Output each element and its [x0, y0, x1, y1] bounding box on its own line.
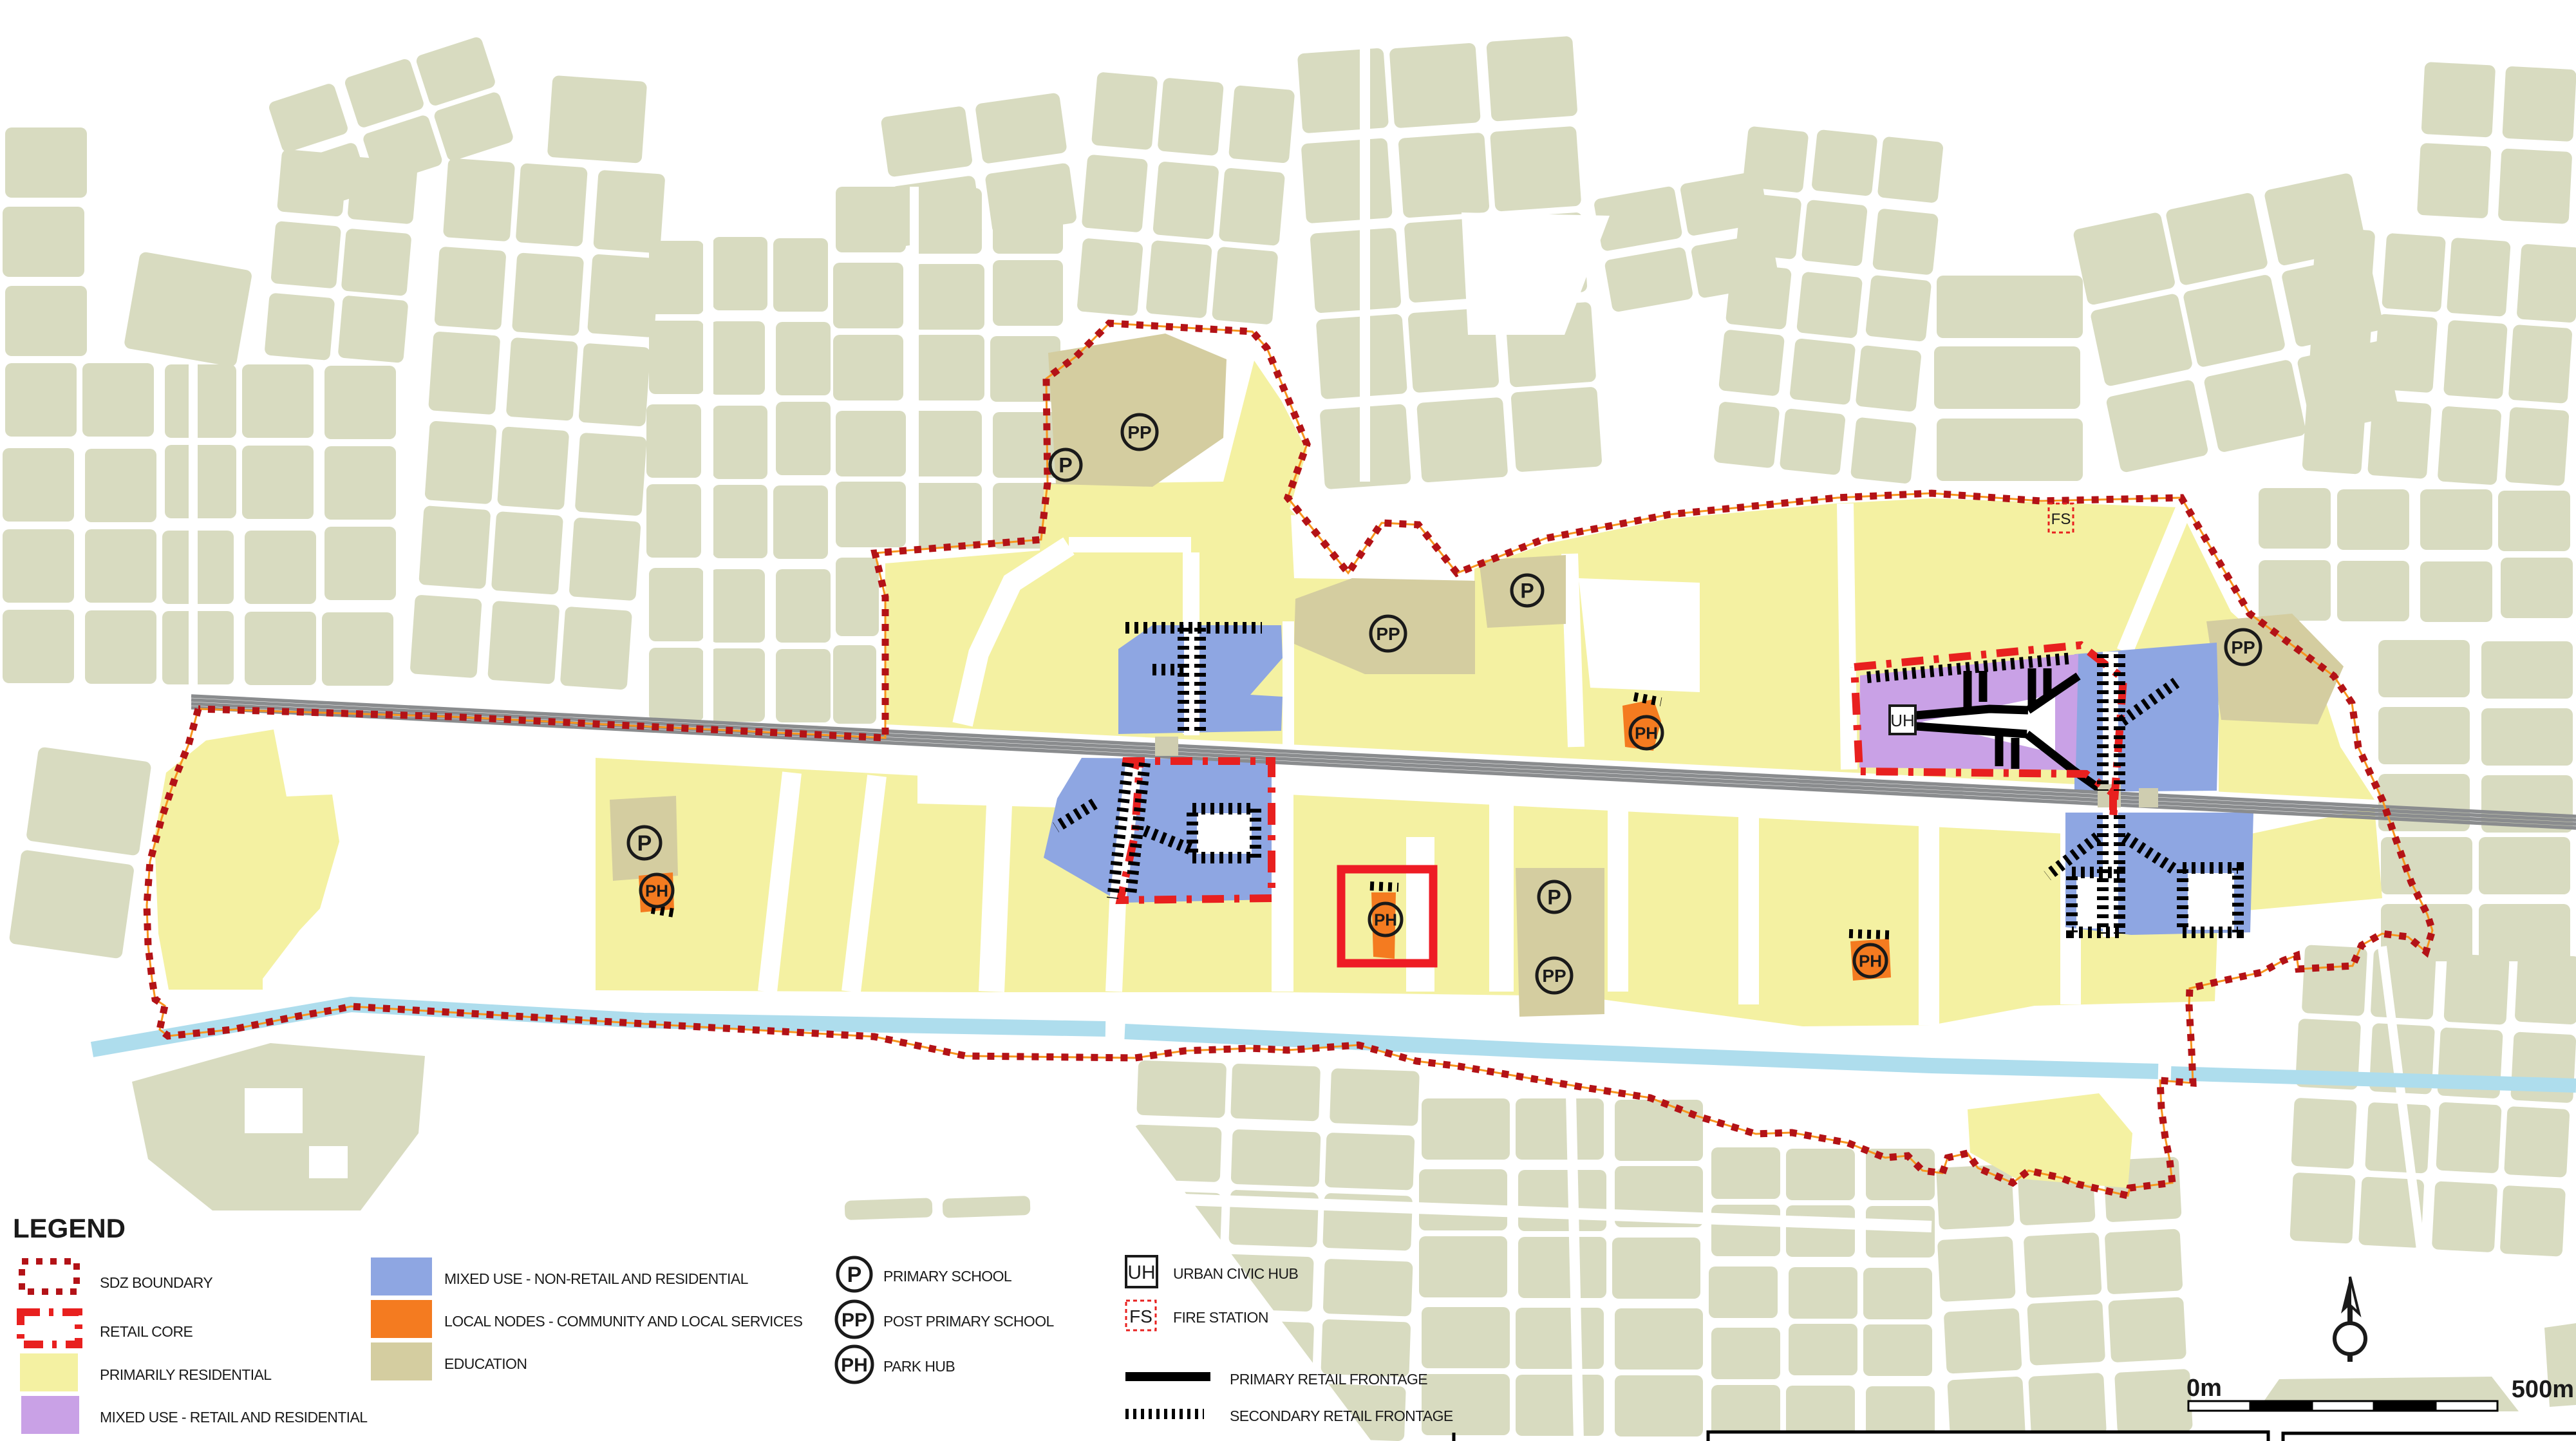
svg-text:P: P — [637, 831, 652, 856]
svg-text:0m: 0m — [2186, 1375, 2222, 1402]
svg-text:FS: FS — [1129, 1306, 1152, 1326]
svg-text:SDZ BOUNDARY: SDZ BOUNDARY — [100, 1274, 212, 1291]
svg-text:LOCAL NODES - COMMUNITY AND LO: LOCAL NODES - COMMUNITY AND LOCAL SERVIC… — [444, 1313, 803, 1330]
svg-text:EDUCATION: EDUCATION — [444, 1355, 527, 1372]
svg-text:RETAIL CORE: RETAIL CORE — [100, 1323, 193, 1340]
svg-text:500m: 500m — [2512, 1376, 2574, 1403]
svg-text:PARK HUB: PARK HUB — [883, 1358, 955, 1375]
svg-text:PH: PH — [1859, 951, 1882, 970]
svg-text:PP: PP — [841, 1310, 867, 1331]
svg-text:LEGEND: LEGEND — [13, 1213, 126, 1243]
svg-text:PRIMARY RETAIL FRONTAGE: PRIMARY RETAIL FRONTAGE — [1230, 1371, 1427, 1388]
svg-text:P: P — [847, 1263, 862, 1287]
svg-text:POST PRIMARY SCHOOL: POST PRIMARY SCHOOL — [883, 1313, 1054, 1330]
svg-text:PH: PH — [1635, 723, 1658, 742]
svg-text:PP: PP — [1542, 966, 1566, 986]
svg-text:P: P — [1058, 454, 1072, 477]
svg-text:SECONDARY RETAIL FRONTAGE: SECONDARY RETAIL FRONTAGE — [1230, 1408, 1453, 1424]
svg-text:FS: FS — [2051, 511, 2071, 528]
svg-text:PRIMARILY RESIDENTIAL: PRIMARILY RESIDENTIAL — [100, 1366, 272, 1383]
svg-text:PH: PH — [841, 1355, 868, 1376]
svg-text:P: P — [1520, 579, 1534, 603]
svg-text:PRIMARY SCHOOL: PRIMARY SCHOOL — [883, 1268, 1012, 1285]
svg-text:MIXED USE - NON-RETAIL AND RES: MIXED USE - NON-RETAIL AND RESIDENTIAL — [444, 1270, 749, 1287]
svg-text:FIRE STATION: FIRE STATION — [1173, 1309, 1268, 1326]
svg-text:PP: PP — [2231, 637, 2255, 657]
svg-text:UH: UH — [1127, 1262, 1155, 1283]
svg-text:PH: PH — [645, 881, 668, 900]
svg-text:URBAN CIVIC HUB: URBAN CIVIC HUB — [1173, 1265, 1298, 1282]
svg-text:PP: PP — [1127, 422, 1151, 442]
svg-text:PP: PP — [1376, 624, 1400, 644]
svg-text:MIXED USE - RETAIL AND RESIDEN: MIXED USE - RETAIL AND RESIDENTIAL — [100, 1409, 368, 1426]
svg-text:UH: UH — [1890, 711, 1915, 730]
svg-text:P: P — [1547, 886, 1561, 909]
svg-text:PH: PH — [1374, 910, 1397, 929]
